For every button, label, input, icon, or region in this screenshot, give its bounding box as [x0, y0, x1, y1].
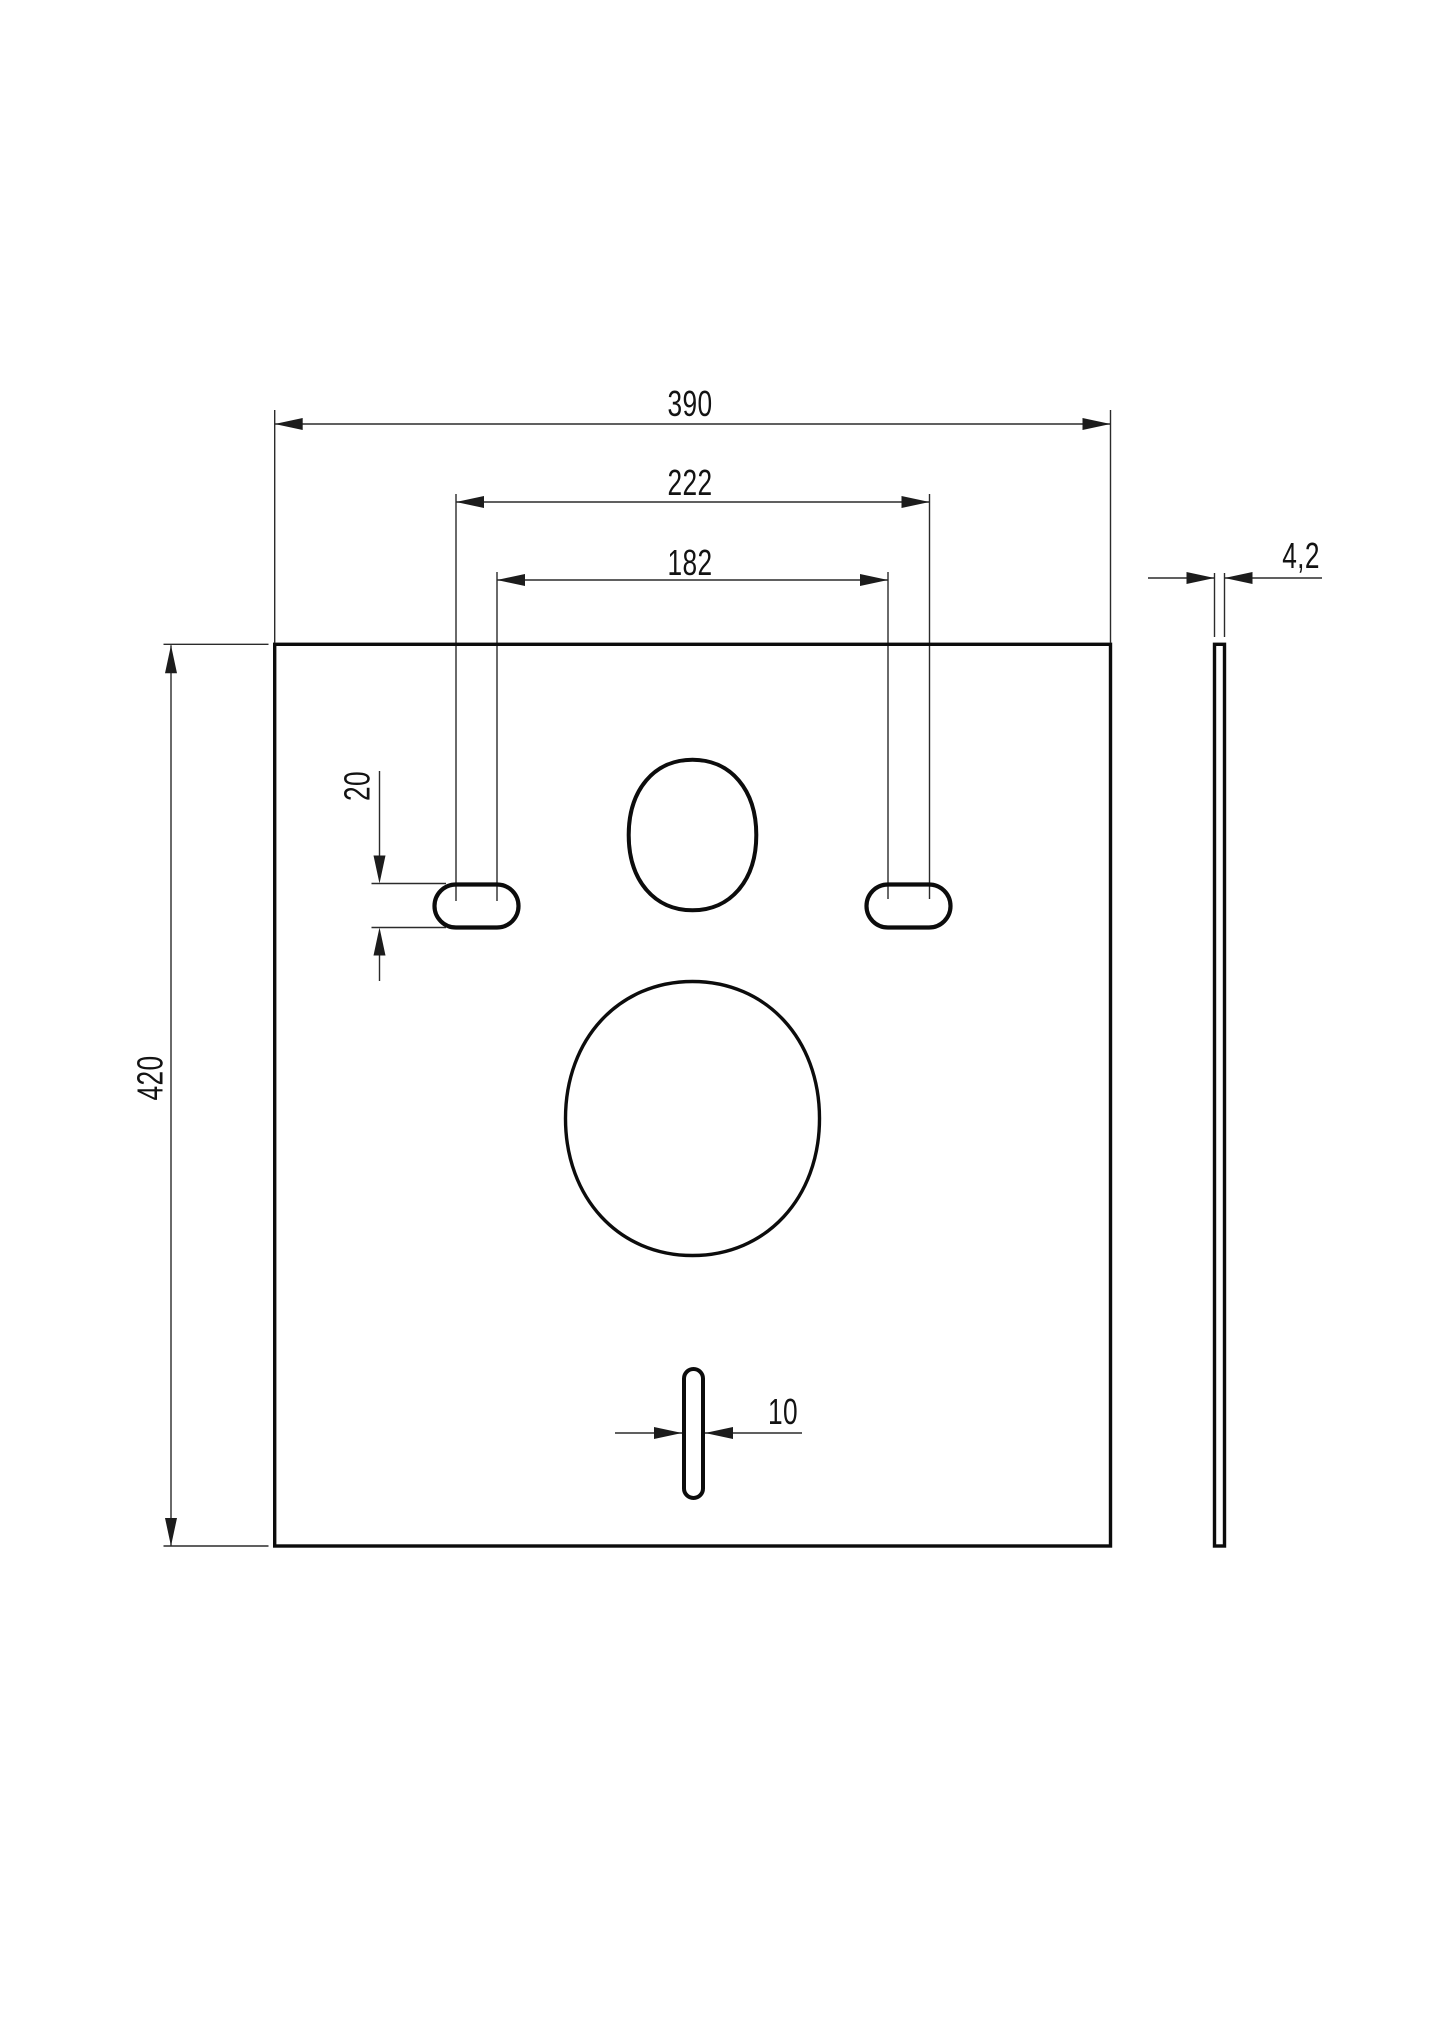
svg-text:10: 10: [768, 1391, 798, 1432]
svg-text:222: 222: [668, 462, 713, 503]
svg-text:390: 390: [668, 383, 713, 424]
svg-text:182: 182: [668, 542, 713, 583]
svg-text:20: 20: [336, 771, 377, 801]
svg-text:420: 420: [129, 1056, 170, 1101]
svg-text:4,2: 4,2: [1282, 535, 1320, 576]
